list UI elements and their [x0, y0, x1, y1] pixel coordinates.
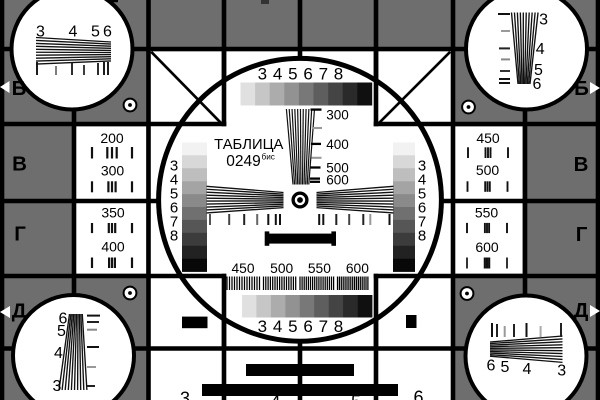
svg-text:500: 500 [476, 162, 500, 178]
svg-text:8: 8 [170, 227, 178, 244]
svg-text:6: 6 [413, 388, 423, 400]
svg-text:ТАБЛИЦА: ТАБЛИЦА [214, 137, 283, 153]
svg-text:6: 6 [303, 317, 312, 336]
svg-text:4: 4 [273, 317, 282, 336]
svg-text:7: 7 [319, 317, 328, 336]
svg-text:300: 300 [326, 107, 349, 122]
svg-text:Б: Б [12, 77, 27, 100]
svg-text:6: 6 [303, 64, 312, 83]
svg-text:3: 3 [180, 389, 190, 400]
svg-text:5: 5 [351, 392, 361, 400]
svg-text:450: 450 [231, 261, 254, 276]
svg-text:4: 4 [523, 361, 532, 378]
svg-text:Д: Д [12, 300, 27, 323]
svg-text:3: 3 [53, 378, 62, 395]
svg-text:5: 5 [501, 359, 510, 376]
svg-text:4: 4 [270, 392, 280, 400]
svg-text:400: 400 [326, 137, 349, 152]
svg-text:3: 3 [36, 24, 45, 41]
svg-text:4: 4 [536, 41, 545, 58]
svg-text:3: 3 [258, 64, 267, 83]
svg-text:5: 5 [288, 317, 297, 336]
svg-text:500: 500 [270, 261, 293, 276]
svg-text:600: 600 [475, 239, 499, 255]
svg-text:В: В [574, 153, 589, 176]
svg-text:8: 8 [334, 317, 343, 336]
svg-text:3: 3 [539, 12, 548, 29]
svg-text:550: 550 [475, 205, 499, 221]
svg-text:Б: Б [574, 77, 589, 100]
svg-text:Г: Г [576, 223, 588, 246]
svg-text:450: 450 [476, 130, 500, 146]
svg-text:3: 3 [258, 317, 267, 336]
svg-text:5: 5 [288, 64, 297, 83]
svg-text:350: 350 [101, 205, 125, 221]
svg-text:7: 7 [319, 64, 328, 83]
svg-text:200: 200 [100, 130, 124, 146]
svg-text:600: 600 [326, 173, 349, 188]
svg-text:6: 6 [103, 24, 112, 41]
svg-text:5: 5 [57, 323, 66, 340]
svg-text:300: 300 [101, 163, 125, 179]
svg-text:Г: Г [14, 223, 26, 246]
svg-text:В: В [12, 153, 27, 176]
svg-text:0249: 0249 [226, 153, 260, 170]
svg-text:8: 8 [418, 227, 426, 244]
svg-text:600: 600 [346, 261, 369, 276]
svg-text:4: 4 [54, 345, 63, 362]
svg-text:5: 5 [91, 24, 100, 41]
svg-text:400: 400 [101, 239, 125, 255]
svg-text:4: 4 [273, 64, 282, 83]
svg-text:бис: бис [262, 152, 275, 161]
svg-text:8: 8 [334, 64, 343, 83]
svg-text:Д: Д [574, 299, 589, 322]
svg-text:6: 6 [487, 357, 496, 374]
svg-text:4: 4 [69, 24, 78, 41]
svg-text:550: 550 [308, 261, 331, 276]
svg-text:6: 6 [533, 76, 542, 93]
svg-text:3: 3 [557, 363, 566, 380]
